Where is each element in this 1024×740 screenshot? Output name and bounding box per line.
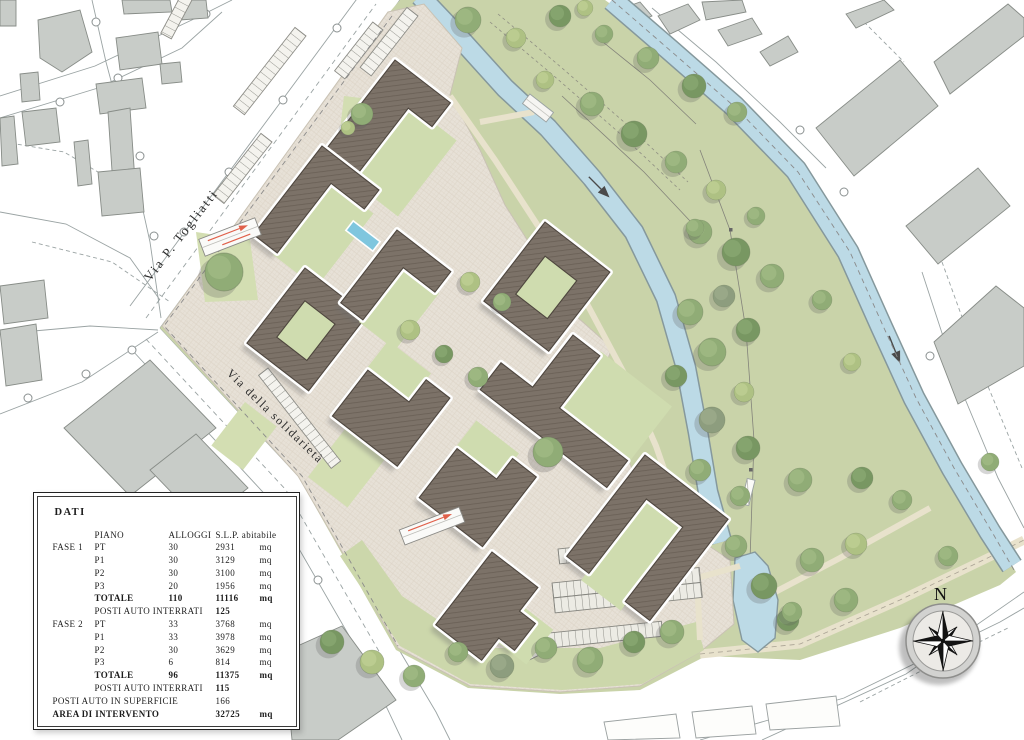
cell-slp: 814 — [216, 656, 260, 669]
cell-fase — [53, 669, 95, 682]
cell-alloggi: 30 — [169, 541, 216, 554]
cell-slp: 3768 — [216, 618, 260, 631]
table-row: P3 20 1956 mq — [53, 580, 296, 593]
cell-fase — [53, 605, 95, 618]
cell-fase — [53, 631, 95, 644]
masterplan-drawing: Via P. Togliatti Via della solidarietà N… — [0, 0, 1024, 740]
cell-unit: mq — [260, 541, 282, 554]
cell-slp: 3978 — [216, 631, 260, 644]
cell-slp: 1956 — [216, 580, 260, 593]
dati-table-body: FASE 1 PT 30 2931 mq P1 30 3129 mq — [53, 541, 296, 720]
header-slp: S.L.P. abitabile — [216, 529, 260, 542]
cell-unit: mq — [260, 708, 282, 721]
cell-unit — [260, 682, 282, 695]
cell-alloggi: 6 — [169, 656, 216, 669]
cell-slp: 11375 — [216, 669, 260, 682]
cell-slp: 32725 — [216, 708, 260, 721]
table-row: P2 30 3629 mq — [53, 644, 296, 657]
table-row: P1 33 3978 mq — [53, 631, 296, 644]
cell-slp: 125 — [216, 605, 260, 618]
table-row: TOTALE 96 11375 mq — [53, 669, 296, 682]
cell-unit: mq — [260, 567, 282, 580]
header-piano: PIANO — [95, 529, 169, 542]
cell-unit: mq — [260, 656, 282, 669]
dati-panel-inner: DATI PIANO ALLOGGI S.L.P. abitabile FASE… — [37, 496, 297, 727]
table-row: POSTI AUTO INTERRATI 125 — [53, 605, 296, 618]
cell-piano: PT — [95, 618, 169, 631]
cell-unit: mq — [260, 554, 282, 567]
cell-piano: P2 — [95, 644, 169, 657]
cell-alloggi: 30 — [169, 554, 216, 567]
cell-piano: P3 — [95, 656, 169, 669]
cell-slp: 115 — [216, 682, 260, 695]
cell-unit: mq — [260, 631, 282, 644]
cell-slp: 166 — [216, 695, 260, 708]
dati-panel-title: DATI — [55, 507, 296, 518]
cell-unit: mq — [260, 618, 282, 631]
table-row: P1 30 3129 mq — [53, 554, 296, 567]
cell-piano: P2 — [95, 567, 169, 580]
cell-alloggi: 33 — [169, 631, 216, 644]
cell-unit: mq — [260, 580, 282, 593]
cell-piano: TOTALE — [95, 592, 169, 605]
cell-alloggi: 96 — [169, 669, 216, 682]
cell-fase — [53, 580, 95, 593]
cell-piano: P1 — [95, 554, 169, 567]
header-alloggi: ALLOGGI — [169, 529, 216, 542]
cell-unit — [260, 695, 282, 708]
cell-unit: mq — [260, 669, 282, 682]
cell-unit: mq — [260, 644, 282, 657]
cell-piano: POSTI AUTO INTERRATI — [95, 605, 216, 618]
cell-unit — [260, 605, 282, 618]
cell-alloggi: 30 — [169, 567, 216, 580]
cell-fase: FASE 2 — [53, 618, 95, 631]
cell-alloggi: 30 — [169, 644, 216, 657]
cell-alloggi: 33 — [169, 618, 216, 631]
cell-fase — [53, 554, 95, 567]
table-row: POSTI AUTO IN SUPERFICIE 166 — [53, 695, 296, 708]
table-row: FASE 2 PT 33 3768 mq — [53, 618, 296, 631]
table-row: POSTI AUTO INTERRATI 115 — [53, 682, 296, 695]
cell-piano: P3 — [95, 580, 169, 593]
cell-piano: PT — [95, 541, 169, 554]
table-row: TOTALE 110 11116 mq — [53, 592, 296, 605]
cell-fase: POSTI AUTO IN SUPERFICIE — [53, 695, 216, 708]
cell-fase: AREA DI INTERVENTO — [53, 708, 216, 721]
cell-fase: FASE 1 — [53, 541, 95, 554]
cell-alloggi: 20 — [169, 580, 216, 593]
dati-table: PIANO ALLOGGI S.L.P. abitabile FASE 1 PT… — [53, 529, 296, 721]
cell-piano: TOTALE — [95, 669, 169, 682]
cell-unit: mq — [260, 592, 282, 605]
cell-fase — [53, 567, 95, 580]
cell-fase — [53, 592, 95, 605]
cell-alloggi: 110 — [169, 592, 216, 605]
cell-slp: 11116 — [216, 592, 260, 605]
table-row: P3 6 814 mq — [53, 656, 296, 669]
cell-fase — [53, 644, 95, 657]
cell-piano: POSTI AUTO INTERRATI — [95, 682, 216, 695]
cell-slp: 3629 — [216, 644, 260, 657]
cell-slp: 3100 — [216, 567, 260, 580]
table-row: P2 30 3100 mq — [53, 567, 296, 580]
cell-fase — [53, 682, 95, 695]
dati-panel: DATI PIANO ALLOGGI S.L.P. abitabile FASE… — [33, 492, 300, 730]
cell-slp: 3129 — [216, 554, 260, 567]
table-row: AREA DI INTERVENTO 32725 mq — [53, 708, 296, 721]
cell-fase — [53, 656, 95, 669]
dati-table-header: PIANO ALLOGGI S.L.P. abitabile — [53, 529, 296, 542]
cell-piano: P1 — [95, 631, 169, 644]
table-row: FASE 1 PT 30 2931 mq — [53, 541, 296, 554]
compass-north-label: N — [934, 584, 948, 604]
cell-slp: 2931 — [216, 541, 260, 554]
